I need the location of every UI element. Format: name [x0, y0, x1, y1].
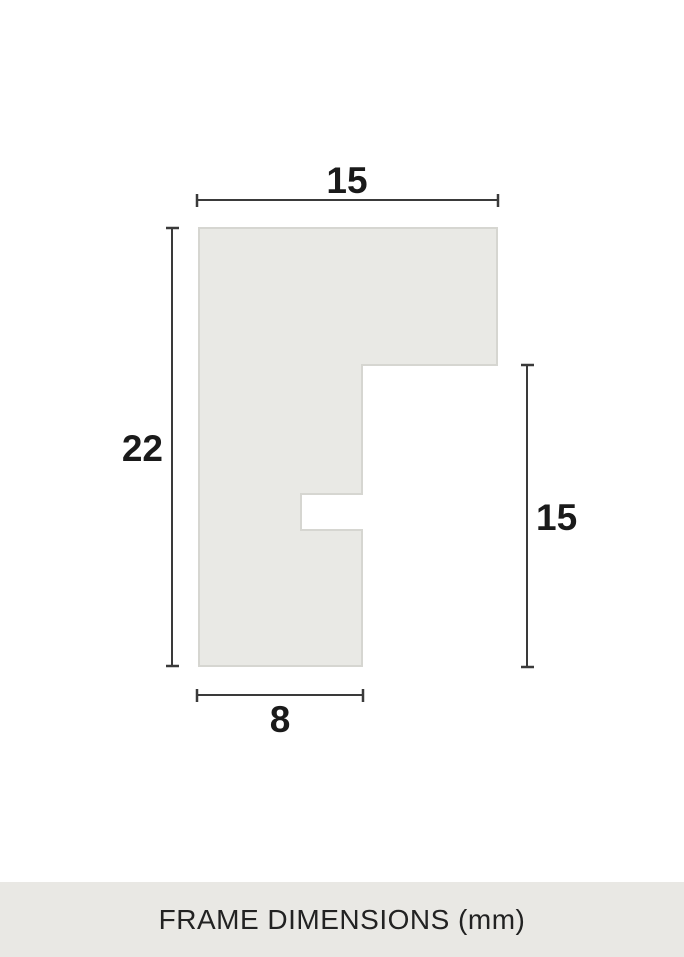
footer-caption-bar: FRAME DIMENSIONS (mm)	[0, 882, 684, 957]
dim-label-left-height: 22	[122, 428, 163, 469]
frame-dimensions-screen: 15 22 15 8 FRAME DIMENSIONS (mm)	[0, 0, 684, 957]
frame-profile-diagram: 15 22 15 8	[0, 0, 684, 882]
dim-label-bottom-width: 8	[270, 699, 291, 740]
footer-caption-label: FRAME DIMENSIONS (mm)	[159, 904, 526, 936]
dim-label-right-height: 15	[536, 497, 577, 538]
frame-profile-svg: 15 22 15 8	[0, 0, 684, 882]
dim-label-top-width: 15	[326, 160, 367, 201]
frame-profile-shape	[199, 228, 497, 666]
